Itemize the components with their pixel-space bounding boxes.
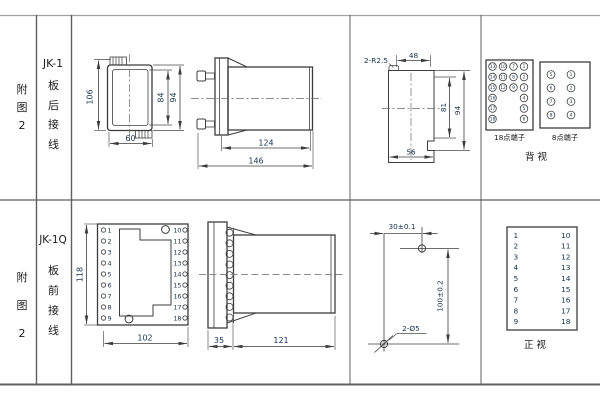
terminal-number: 13 xyxy=(490,64,496,70)
terminal-number: 17 xyxy=(490,106,496,112)
dim-94-cutout-label: 94 xyxy=(453,106,462,116)
terminal-number: 16 xyxy=(490,96,496,102)
terminal-number: 1 xyxy=(514,231,519,240)
terminal-circle xyxy=(101,283,105,287)
jk1q-front-view-drawing: 110211312413514615716817918 118 102 xyxy=(76,224,189,347)
terminal-number: 2 xyxy=(514,242,519,251)
dim-146-label: 146 xyxy=(248,157,263,166)
terminal-circle xyxy=(101,272,105,276)
terminal-number: 15 xyxy=(173,281,181,289)
terminal-circle xyxy=(183,228,187,232)
terminal-circle xyxy=(101,239,105,243)
rear-view-caption: 背 视 xyxy=(525,151,548,163)
terminal-number: 8 xyxy=(108,303,112,311)
front-view-table-numbers: 110211312413514615716817918 xyxy=(514,231,571,326)
terminal-8pt-box: 51627384 8点端子 xyxy=(540,62,590,142)
terminal-number: 3 xyxy=(570,99,573,105)
terminal-number: 1 xyxy=(570,72,573,78)
terminal-circle xyxy=(101,294,105,298)
dim-81-label: 81 xyxy=(439,103,448,112)
terminal-number: 14 xyxy=(561,274,571,283)
terminal-number: 2 xyxy=(108,237,112,245)
terminal-number: 8 xyxy=(512,75,515,81)
dim-84-label: 84 xyxy=(157,92,166,102)
terminal-circle xyxy=(183,239,187,243)
terminal-number: 5 xyxy=(514,274,519,283)
drilling-plan-drawing: 30±0.1 100±0.2 2-Ø5 xyxy=(368,222,459,353)
terminal-number: 11 xyxy=(500,75,506,81)
dim-124-label: 124 xyxy=(258,139,273,148)
dim-60-label: 60 xyxy=(125,134,135,143)
terminal-number: 6 xyxy=(108,281,112,289)
terminal-number: 16 xyxy=(561,296,571,305)
terminal-number: 2 xyxy=(523,75,526,81)
terminal-number: 17 xyxy=(173,303,181,311)
terminal-number: 13 xyxy=(173,259,181,267)
dim-100-label: 100±0.2 xyxy=(436,280,445,312)
dim-106-label: 106 xyxy=(86,89,95,104)
terminal-number: 11 xyxy=(173,237,181,245)
terminal-number: 3 xyxy=(108,248,112,256)
terminal-number: 5 xyxy=(523,106,526,112)
terminal-number: 8 xyxy=(514,306,519,315)
terminal-number: 17 xyxy=(561,306,571,315)
dim-118-label: 118 xyxy=(76,267,85,282)
terminal-number: 6 xyxy=(514,285,519,294)
terminal-number: 5 xyxy=(550,72,553,78)
terminal-circle xyxy=(101,250,105,254)
terminal-number: 9 xyxy=(512,85,515,91)
dim-102-label: 102 xyxy=(137,334,152,343)
terminal-number: 12 xyxy=(173,248,181,256)
figure-page: 附 图 2 JK-1 板 后 接 线 附 图 2 JK-1Q 板 前 接 线 xyxy=(0,0,600,400)
dim-30-label: 30±0.1 xyxy=(388,222,415,231)
terminal-number: 1 xyxy=(523,64,526,70)
panel-cutout-drawing: 2-R2.5 48 81 94 56 xyxy=(364,51,470,163)
jk1-side-view-drawing: 124 146 xyxy=(191,58,322,169)
terminal-number: 9 xyxy=(108,314,112,322)
terminal-number: 3 xyxy=(523,85,526,91)
terminal-circle xyxy=(183,294,187,298)
terminal-number: 15 xyxy=(561,285,571,294)
dim-56-label: 56 xyxy=(406,148,416,157)
terminal-number: 1 xyxy=(108,226,112,234)
holes-diameter-label: 2-Ø5 xyxy=(402,324,420,333)
terminal-circle xyxy=(183,316,187,320)
dim-94-label: 94 xyxy=(169,92,178,102)
terminal-number: 18 xyxy=(490,117,496,123)
jk1q-terminal-rows: 110211312413514615716817918 xyxy=(101,226,187,322)
terminal-8pt-caption: 8点端子 xyxy=(552,133,578,142)
terminal-number: 9 xyxy=(514,317,519,326)
terminal-number: 18 xyxy=(561,317,571,326)
terminal-18pt-box: 131071141182151293164175186 18点端子 xyxy=(486,60,533,142)
front-view-caption: 正 视 xyxy=(524,339,547,351)
terminal-circle xyxy=(101,228,105,232)
terminal-18pt-caption: 18点端子 xyxy=(494,133,525,142)
dim-35-label: 35 xyxy=(214,336,224,345)
front-view-table: 110211312413514615716817918 正 视 xyxy=(507,227,577,351)
terminal-number: 11 xyxy=(561,242,571,251)
terminal-circle xyxy=(183,272,187,276)
terminal-circle xyxy=(183,305,187,309)
terminal-number: 12 xyxy=(500,85,506,91)
mounting-hole xyxy=(162,226,170,234)
terminal-number: 5 xyxy=(108,270,112,278)
terminal-number: 8 xyxy=(550,113,553,119)
terminal-number: 4 xyxy=(570,113,573,119)
terminal-grid-18: 131071141182151293164175186 xyxy=(489,63,528,123)
terminal-circle xyxy=(183,283,187,287)
terminal-number: 4 xyxy=(514,263,519,272)
terminal-number: 4 xyxy=(108,259,112,267)
dim-48-label: 48 xyxy=(409,51,419,60)
terminal-number: 6 xyxy=(550,86,553,92)
terminal-number: 14 xyxy=(173,270,181,278)
terminal-circle xyxy=(183,261,187,265)
terminal-grid-8: 51627384 xyxy=(547,71,575,119)
terminal-circle xyxy=(101,305,105,309)
technical-drawing-canvas: 106 84 94 60 xyxy=(0,0,600,400)
terminal-circle xyxy=(101,316,105,320)
terminal-number: 2 xyxy=(570,86,573,92)
terminal-number: 3 xyxy=(514,252,519,261)
terminal-circle xyxy=(101,261,105,265)
terminal-number: 10 xyxy=(173,226,181,234)
terminal-number: 10 xyxy=(561,231,571,240)
terminal-number: 14 xyxy=(490,75,496,81)
terminal-number: 13 xyxy=(561,263,571,272)
terminal-number: 15 xyxy=(490,85,496,91)
terminal-number: 7 xyxy=(514,296,519,305)
terminal-number: 4 xyxy=(523,96,526,102)
terminal-number: 7 xyxy=(550,99,553,105)
terminal-number: 7 xyxy=(108,292,112,300)
terminal-number: 18 xyxy=(173,314,181,322)
terminal-number: 16 xyxy=(173,292,181,300)
dim-121-label: 121 xyxy=(273,336,288,345)
terminal-number: 7 xyxy=(512,64,515,70)
terminal-circle xyxy=(183,250,187,254)
jk1q-side-view-drawing: 35 121 xyxy=(199,222,346,350)
terminal-number: 12 xyxy=(561,252,570,261)
jk1-front-view-drawing: 106 84 94 60 xyxy=(86,54,185,147)
terminal-number: 6 xyxy=(523,117,526,123)
terminal-number: 10 xyxy=(500,64,506,70)
cutout-radius-label: 2-R2.5 xyxy=(364,56,388,65)
